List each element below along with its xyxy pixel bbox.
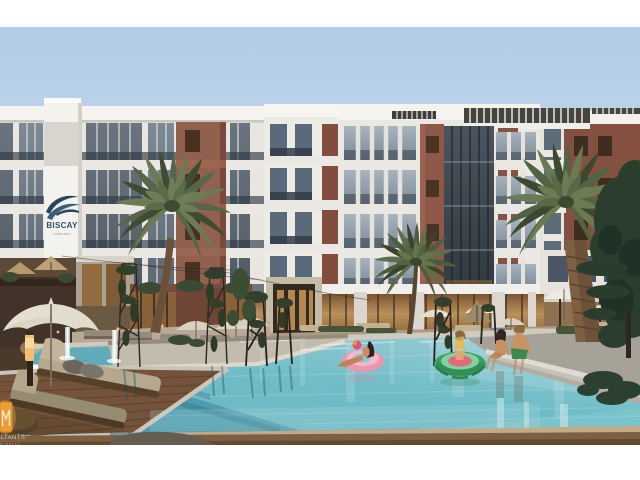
svg-text:TOWN BAY: TOWN BAY	[53, 232, 71, 236]
svg-text:ULTANTS: ULTANTS	[0, 435, 25, 441]
svg-text:BISCAY: BISCAY	[46, 221, 78, 230]
